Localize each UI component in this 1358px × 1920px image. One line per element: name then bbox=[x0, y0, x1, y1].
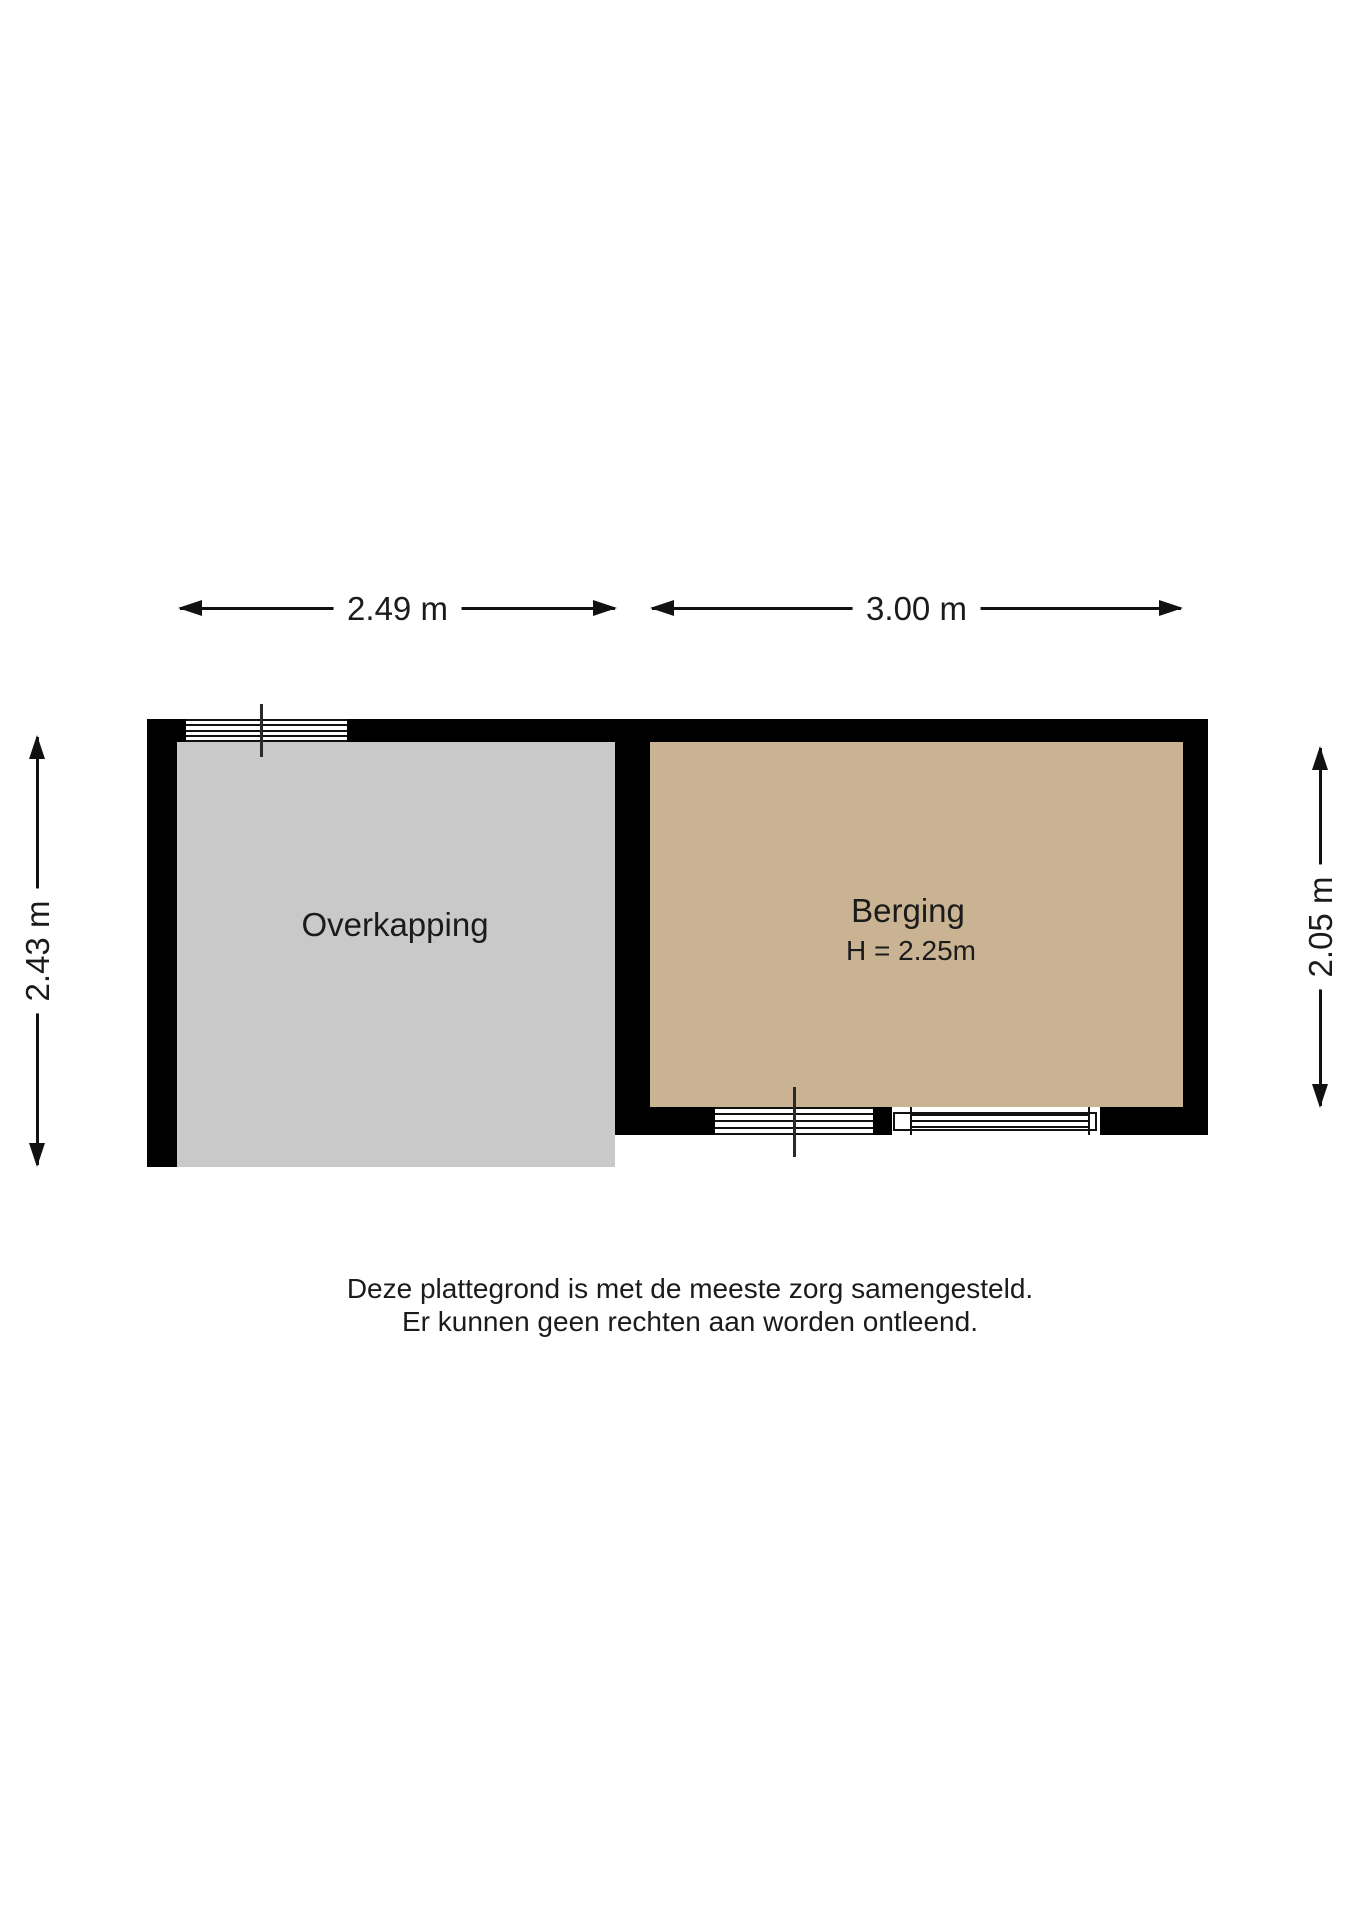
wall-bottom-pier bbox=[873, 1107, 892, 1135]
window-line bbox=[186, 719, 347, 721]
room-label-berging-height: H = 2.25m bbox=[846, 935, 976, 967]
window-line bbox=[186, 740, 347, 742]
wall-bottom-segment-left bbox=[615, 1107, 715, 1135]
dimension-berging-depth: 2.05 m bbox=[1304, 746, 1337, 1108]
door-glass-line bbox=[912, 1120, 1088, 1122]
disclaimer-line-2: Er kunnen geen rechten aan worden ontlee… bbox=[347, 1305, 1033, 1338]
arrow-up-icon bbox=[29, 735, 45, 759]
arrow-up-icon bbox=[1312, 746, 1328, 770]
room-label-berging: Berging bbox=[851, 892, 965, 930]
window-line bbox=[186, 735, 347, 737]
dimension-overkapping-depth: 2.43 m bbox=[21, 735, 54, 1167]
dimension-label-berging-width: 3.00 m bbox=[852, 590, 981, 626]
arrow-right-icon bbox=[1159, 600, 1183, 616]
door-glass-line bbox=[912, 1114, 1088, 1116]
window-line bbox=[186, 730, 347, 732]
door-glass-line bbox=[912, 1126, 1088, 1128]
wall-bottom-segment-right bbox=[1100, 1107, 1208, 1135]
arrow-left-icon bbox=[650, 600, 674, 616]
dimension-label-berging-depth: 2.05 m bbox=[1303, 865, 1339, 990]
dimension-label-overkapping-width: 2.49 m bbox=[333, 590, 462, 626]
dimension-overkapping-width: 2.49 m bbox=[178, 592, 617, 625]
window-mullion-marker bbox=[793, 1087, 796, 1157]
dimension-label-overkapping-depth: 2.43 m bbox=[20, 889, 56, 1014]
disclaimer-line-1: Deze plattegrond is met de meeste zorg s… bbox=[347, 1272, 1033, 1305]
window-top-left bbox=[186, 719, 347, 742]
room-overkapping-floor bbox=[177, 742, 615, 1167]
room-label-overkapping: Overkapping bbox=[301, 906, 488, 944]
wall-left bbox=[147, 719, 177, 1167]
window-line bbox=[186, 724, 347, 726]
arrow-right-icon bbox=[593, 600, 617, 616]
floorplan-canvas: 2.49 m 3.00 m 2.43 m 2.05 m bbox=[0, 0, 1358, 1920]
sliding-door-bottom bbox=[892, 1107, 1100, 1135]
dimension-berging-width: 3.00 m bbox=[650, 592, 1183, 625]
disclaimer-text: Deze plattegrond is met de meeste zorg s… bbox=[347, 1272, 1033, 1338]
arrow-down-icon bbox=[1312, 1084, 1328, 1108]
door-post bbox=[1088, 1107, 1090, 1135]
wall-berging-left bbox=[615, 719, 650, 1135]
arrow-down-icon bbox=[29, 1143, 45, 1167]
wall-berging-right bbox=[1183, 719, 1208, 1135]
arrow-left-icon bbox=[178, 600, 202, 616]
window-mullion-marker bbox=[260, 704, 263, 757]
